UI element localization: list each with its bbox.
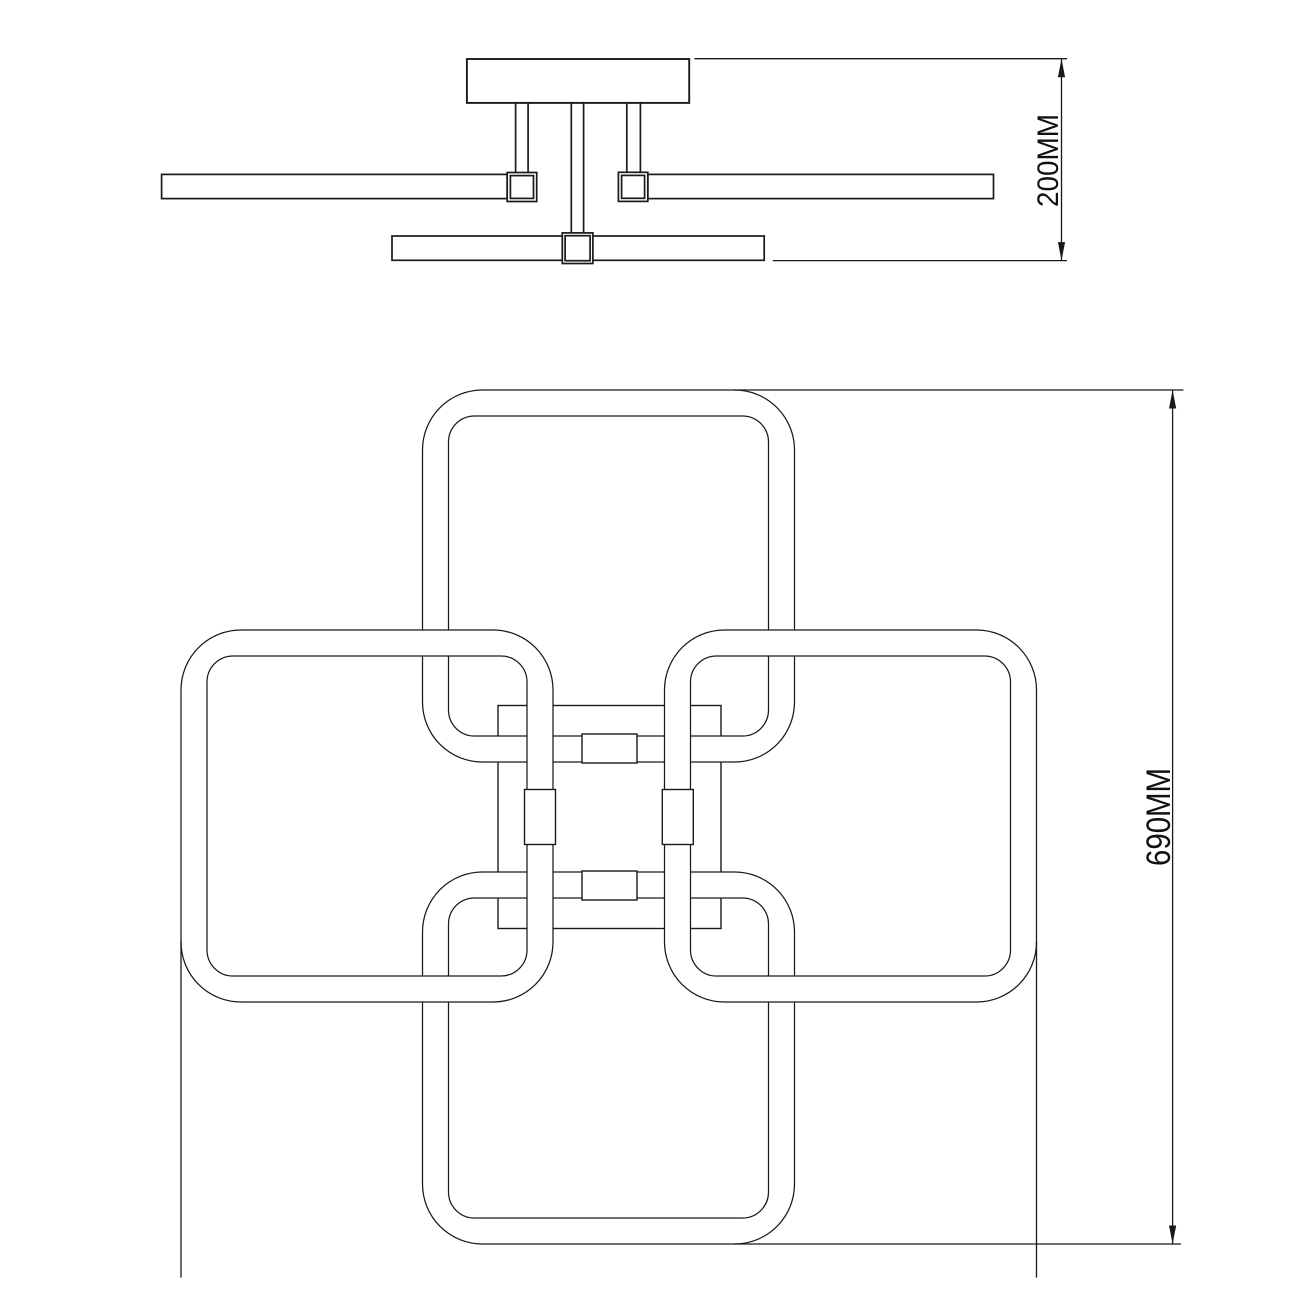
svg-text:200MM: 200MM xyxy=(1032,114,1065,207)
svg-text:690MM: 690MM xyxy=(1140,768,1178,866)
